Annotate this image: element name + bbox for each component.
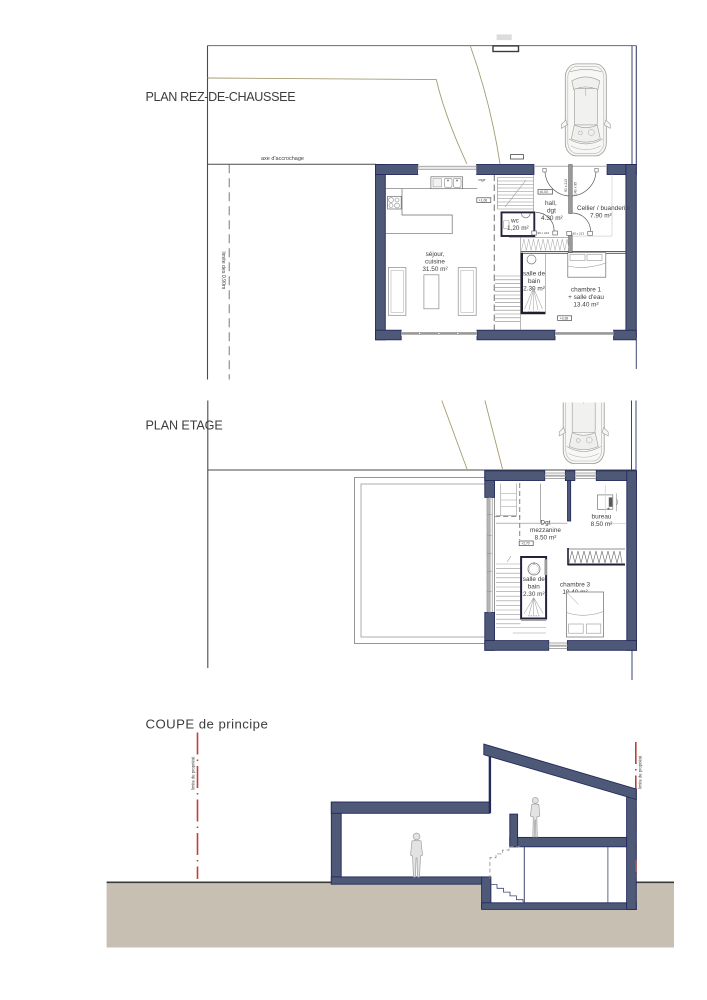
svg-text:salle de: salle de	[523, 576, 545, 583]
svg-text:salle de: salle de	[523, 271, 545, 278]
svg-text:wc: wc	[510, 218, 520, 225]
svg-text:chambre 3: chambre 3	[560, 582, 591, 589]
svg-text:limite de propriété: limite de propriété	[638, 755, 643, 789]
svg-text:chambre 1: chambre 1	[571, 287, 602, 294]
svg-text:13.40 m²: 13.40 m²	[573, 301, 598, 308]
svg-text:2.30 m²: 2.30 m²	[523, 591, 545, 598]
svg-text:mezzanine: mezzanine	[530, 527, 561, 534]
svg-text:1,20 m²: 1,20 m²	[507, 225, 529, 232]
svg-text:90 x 213: 90 x 213	[573, 231, 585, 235]
svg-text:limite des 0.90m: limite des 0.90m	[220, 252, 226, 290]
svg-text:140 x 95: 140 x 95	[573, 182, 577, 195]
svg-text:+1,08: +1,08	[479, 198, 488, 202]
svg-text:Cellier / buanderie: Cellier / buanderie	[577, 205, 629, 212]
svg-text:PLAN REZ-DE-CHAUSSEE: PLAN REZ-DE-CHAUSSEE	[146, 90, 296, 104]
svg-text:+ salle d'eau: + salle d'eau	[568, 294, 604, 301]
svg-text:bain: bain	[528, 278, 541, 285]
svg-text:±0,00: ±0,00	[540, 190, 548, 194]
svg-text:hall,: hall,	[545, 200, 557, 207]
svg-text:mge: mge	[479, 178, 486, 182]
svg-text:4.30 m²: 4.30 m²	[541, 215, 563, 222]
svg-text:dgt: dgt	[547, 207, 556, 214]
svg-text:8.50 m²: 8.50 m²	[535, 534, 557, 541]
svg-text:8.50 m²: 8.50 m²	[591, 521, 613, 528]
svg-text:cuisine: cuisine	[425, 258, 445, 265]
svg-text:+2,70: +2,70	[521, 542, 530, 546]
svg-text:31.50 m²: 31.50 m²	[422, 266, 447, 273]
svg-text:PLAN ETAGE: PLAN ETAGE	[146, 419, 223, 433]
svg-text:séjour,: séjour,	[426, 251, 445, 258]
svg-text:90 x 213: 90 x 213	[564, 179, 568, 192]
svg-text:90 x 213: 90 x 213	[538, 231, 550, 235]
svg-text:7.90 m²: 7.90 m²	[590, 213, 612, 220]
svg-text:bureau: bureau	[592, 514, 612, 521]
svg-text:COUPE de principe: COUPE de principe	[146, 717, 269, 732]
svg-text:axe d'accrochage: axe d'accrochage	[261, 156, 304, 162]
svg-text:bain: bain	[528, 583, 541, 590]
svg-text:limite de propriété: limite de propriété	[191, 756, 196, 790]
svg-text:+0,38: +0,38	[560, 316, 569, 320]
